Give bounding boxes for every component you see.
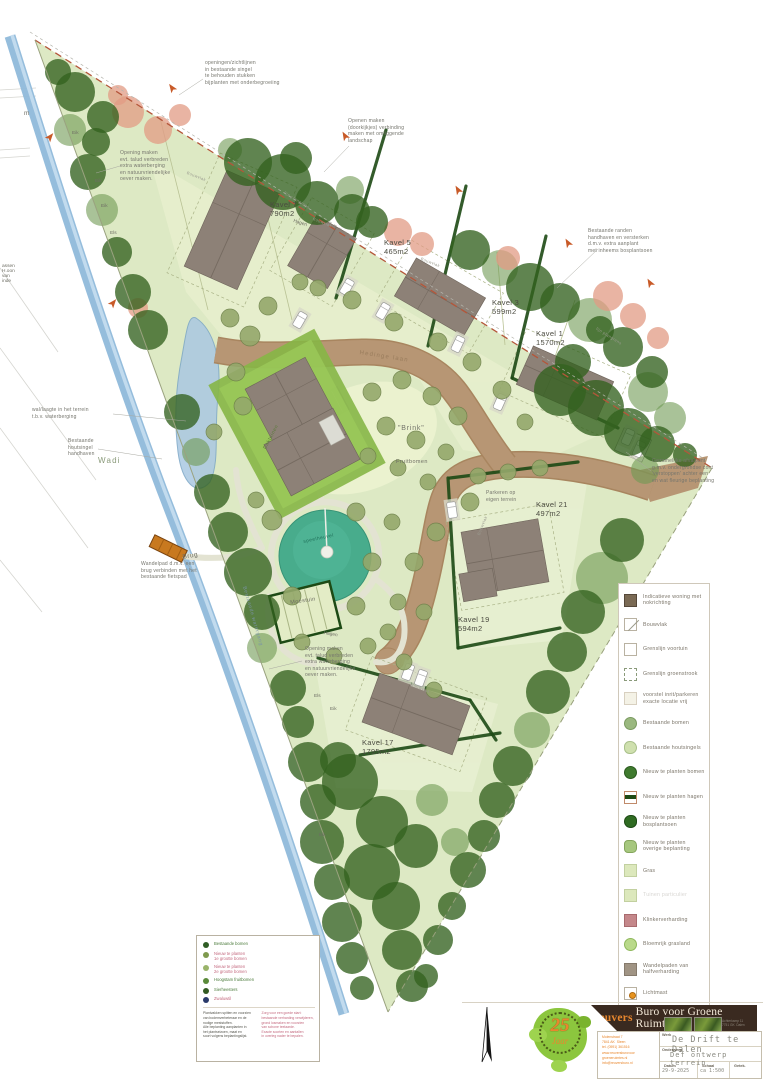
anniversary-logo: 25 Jaar <box>531 1006 589 1070</box>
tree-dot-icon <box>203 978 209 984</box>
title-block: Molenstraat 7 7841 AK Sleen tel. (0591) … <box>597 1031 762 1079</box>
legend-label: Indicatieve woning met nokrichting <box>643 594 705 607</box>
drawing-subject: Def ontwerp terrein <box>660 1051 761 1067</box>
legend-swatch-bloem-icon <box>624 938 637 951</box>
planting-notes: Plantvakken spitten en voorzien van bode… <box>203 1007 315 1039</box>
legend-swatch-mast-icon <box>624 987 637 1000</box>
tree-dot-icon <box>203 997 209 1003</box>
legend-item-4: voorstel inrit/parkeren exacte locatie v… <box>624 686 705 711</box>
logo-splash-blob <box>551 1060 567 1072</box>
legend-swatch-circ_new-icon <box>624 766 637 779</box>
legend-label: Gras <box>643 868 655 875</box>
logo-25-text: 25 <box>531 1015 589 1037</box>
legend-swatch-blob_mid-icon <box>624 840 637 853</box>
legend-label: Lichtmast <box>643 990 667 997</box>
legend-label: Nieuw te planten bosplantsoen <box>643 815 705 828</box>
firm-web: www.reuversburovoor groeneruimtes.nl inf… <box>602 1051 659 1065</box>
photo-thumbnail <box>694 1017 722 1032</box>
legend-item-0: Indicatieve woning met nokrichting <box>624 588 705 613</box>
note-pink: Zorg voor een goede start: bestaande ver… <box>262 1011 316 1039</box>
planting-item-5: Zwaluwtil <box>203 996 315 1003</box>
legend-label: Bloemrijk grasland <box>643 941 690 948</box>
legend-swatch-dashdot-icon <box>624 668 637 681</box>
legend-label: Nieuw te planten overige beplanting <box>643 840 705 853</box>
north-arrow-icon <box>478 1006 498 1070</box>
legend-swatch-circ_best-icon <box>624 717 637 730</box>
legend-label: Grenslijn groenstrook <box>643 671 698 678</box>
legend-item-7: Nieuw te planten bomen <box>624 760 705 785</box>
legend-item-15: Wandelpaden van halfverharding <box>624 957 705 982</box>
planting-label: Hoogstam fruitbomen <box>214 977 254 982</box>
legend-panel: Indicatieve woning met nokrichtingBouwvl… <box>618 583 710 1007</box>
logo-jaar-text: Jaar <box>531 1036 589 1046</box>
legend-item-13: Klinkerverharding <box>624 908 705 933</box>
legend-swatch-half-icon <box>624 963 637 976</box>
legend-label: Grenslijn voortuin <box>643 646 688 653</box>
planting-label: Sierheesters <box>214 987 238 992</box>
legend-swatch-tuin-icon <box>624 889 637 902</box>
legend-swatch-blob_pale-icon <box>624 741 637 754</box>
legend-item-3: Grenslijn groenstrook <box>624 662 705 687</box>
planting-label: Nieuw te planten 1e grootte bomen <box>214 951 247 962</box>
planting-label: Nieuw te planten 2e grootte bomen <box>214 964 247 975</box>
legend-item-10: Nieuw te planten overige beplanting <box>624 834 705 859</box>
legend-label: Bestaande houtsingels <box>643 745 701 752</box>
legend-label: Tuinen particulier <box>643 892 687 899</box>
tree-dot-icon <box>203 942 209 948</box>
legend-swatch-klinker-icon <box>624 914 637 927</box>
titleblock-fields: Werk De Drift te Dalen Onderwerp Def ont… <box>660 1032 761 1078</box>
legend-item-14: Bloemrijk grasland <box>624 932 705 957</box>
legend-label: voorstel inrit/parkeren exacte locatie v… <box>643 692 705 705</box>
legend-swatch-blob_dark-icon <box>624 815 637 828</box>
titleblock-topline <box>462 1002 763 1003</box>
legend-item-11: Gras <box>624 859 705 884</box>
tree-dot-icon <box>203 988 209 994</box>
legend-label: Nieuw te planten bomen <box>643 769 705 776</box>
legend-swatch-bar-icon <box>624 791 637 804</box>
legend-item-1: Bouwvlak <box>624 613 705 638</box>
drawing-scale: ca 1:500 <box>700 1068 729 1074</box>
planting-item-0: Bestaande bomen <box>203 941 315 948</box>
legend-label: Bestaande bomen <box>643 720 689 727</box>
legend-label: Wandelpaden van halfverharding <box>643 963 705 976</box>
legend-label: Nieuw te planten hagen <box>643 794 703 801</box>
legend-swatch-gras-icon <box>624 864 637 877</box>
drawing-date: 29-9-2025 <box>662 1068 697 1074</box>
legend-item-12: Tuinen particulier <box>624 883 705 908</box>
site-plan-page: { "map": { "plots": [ {"name":"Kavel 7",… <box>0 0 763 1080</box>
legend-swatch-voortuin-icon <box>624 643 637 656</box>
planting-item-3: Hoogstam fruitbomen <box>203 977 315 984</box>
legend-swatch-diag-icon <box>624 618 637 631</box>
planting-label: Bestaande bomen <box>214 941 248 946</box>
legend-swatch-inrit-icon <box>624 692 637 705</box>
legend-item-5: Bestaande bomen <box>624 711 705 736</box>
planting-item-2: Nieuw te planten 2e grootte bomen <box>203 964 315 975</box>
titleblock-address: Molenstraat 7 7841 AK Sleen tel. (0591) … <box>598 1032 660 1078</box>
planting-item-4: Sierheesters <box>203 987 315 994</box>
firm-address: Molenstraat 7 7841 AK Sleen tel. (0591) … <box>602 1035 659 1049</box>
reference-photos <box>664 1017 722 1032</box>
planting-item-1: Nieuw te planten 1e grootte bomen <box>203 951 315 962</box>
legend-item-8: Nieuw te planten hagen <box>624 785 705 810</box>
planting-legend-box: Bestaande bomenNieuw te planten 1e groot… <box>196 935 320 1062</box>
legend-item-9: Nieuw te planten bosplantsoen <box>624 809 705 834</box>
note-black: Plantvakken spitten en voorzien van bode… <box>203 1011 257 1039</box>
legend-label: Bouwvlak <box>643 622 667 629</box>
legend-item-6: Bestaande houtsingels <box>624 736 705 761</box>
legend-swatch-woning-icon <box>624 594 637 607</box>
photo-thumbnail <box>664 1017 692 1032</box>
photo-caption: Achterkamp 11 7751 GK Dalen <box>722 1019 745 1028</box>
legend-item-2: Grenslijn voortuin <box>624 637 705 662</box>
tree-dot-icon <box>203 952 209 958</box>
tree-dot-icon <box>203 965 209 971</box>
legend-label: Klinkerverharding <box>643 917 688 924</box>
planting-label: Zwaluwtil <box>214 996 231 1001</box>
